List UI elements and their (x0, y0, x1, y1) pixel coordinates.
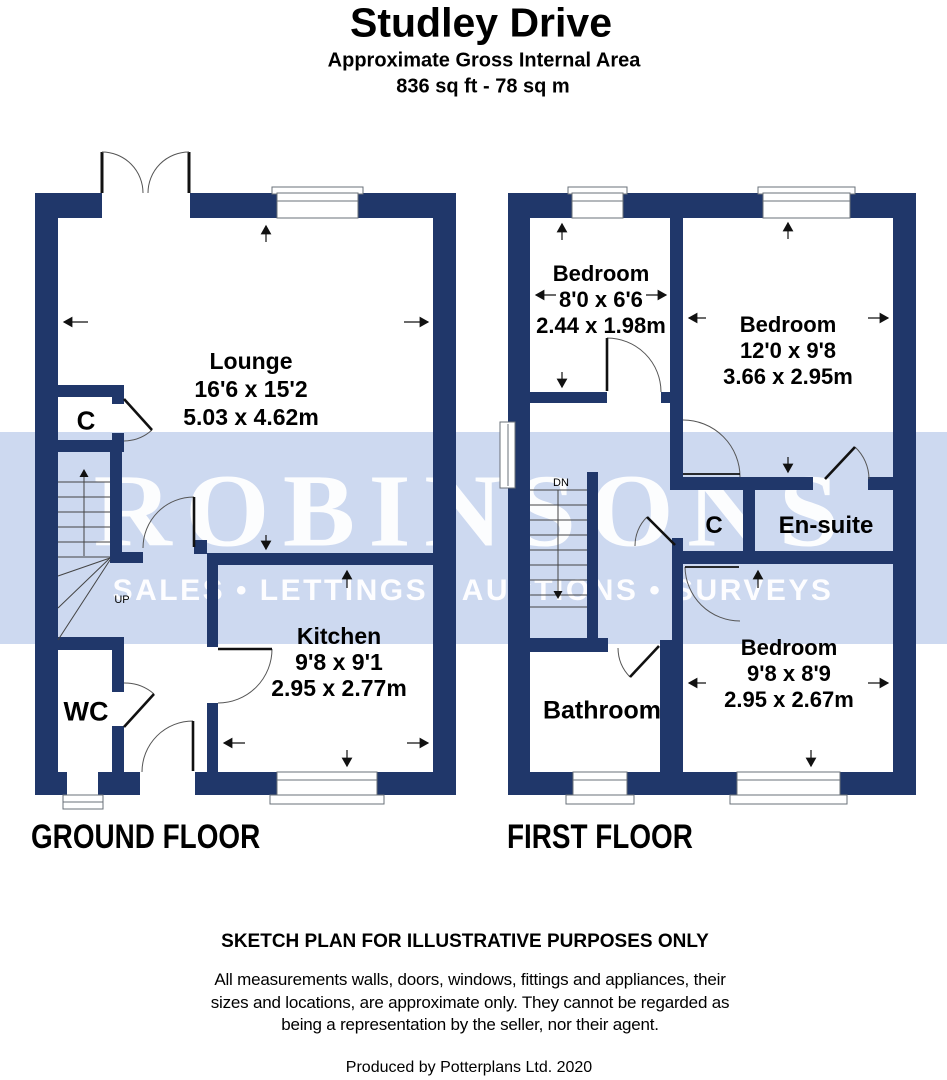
room-label-wc: WC (64, 697, 109, 728)
ground-floor-title: GROUND FLOOR (31, 818, 260, 857)
room-label-bathroom: Bathroom (543, 697, 661, 726)
room-label-kitchen: Kitchen 9'8 x 9'1 2.95 x 2.77m (271, 623, 407, 701)
disclaimer-line-2: sizes and locations, are approximate onl… (211, 993, 730, 1013)
ground-stairs (58, 470, 110, 640)
room-label-cupboard-first: C (705, 512, 722, 540)
bedroom3-name: Bedroom (724, 635, 854, 661)
bedroom3-metric-size: 2.95 x 2.67m (724, 687, 854, 713)
lounge-imperial-size: 16'6 x 15'2 (183, 375, 319, 403)
producer-credit: Produced by Potterplans Ltd. 2020 (346, 1059, 592, 1077)
stairs-up-label: UP (114, 594, 129, 606)
kitchen-imperial-size: 9'8 x 9'1 (271, 649, 407, 675)
bedroom3-imperial-size: 9'8 x 8'9 (724, 661, 854, 687)
kitchen-name: Kitchen (271, 623, 407, 649)
room-label-cupboard-ground: C (77, 406, 96, 437)
disclaimer-title: SKETCH PLAN FOR ILLUSTRATIVE PURPOSES ON… (221, 931, 709, 953)
room-label-bedroom2: Bedroom 12'0 x 9'8 3.66 x 2.95m (723, 312, 853, 390)
first-floor-title: FIRST FLOOR (507, 818, 693, 857)
bedroom1-imperial-size: 8'0 x 6'6 (536, 287, 666, 313)
ground-doors (102, 152, 272, 772)
bedroom2-metric-size: 3.66 x 2.95m (723, 364, 853, 390)
disclaimer-line-3: being a representation by the seller, no… (281, 1015, 659, 1035)
lounge-metric-size: 5.03 x 4.62m (183, 403, 319, 431)
kitchen-metric-size: 2.95 x 2.77m (271, 675, 407, 701)
stairs-down-label: DN (553, 477, 569, 489)
bedroom2-name: Bedroom (723, 312, 853, 338)
room-label-bedroom1: Bedroom 8'0 x 6'6 2.44 x 1.98m (536, 261, 666, 339)
room-label-ensuite: En-suite (779, 512, 874, 540)
room-label-bedroom3: Bedroom 9'8 x 8'9 2.95 x 2.67m (724, 635, 854, 713)
room-label-lounge: Lounge 16'6 x 15'2 5.03 x 4.62m (183, 347, 319, 431)
lounge-name: Lounge (183, 347, 319, 375)
bedroom1-metric-size: 2.44 x 1.98m (536, 313, 666, 339)
disclaimer-line-1: All measurements walls, doors, windows, … (214, 970, 725, 990)
floorplan-page: { "title": { "name": "Studley Drive", "s… (0, 0, 947, 1080)
first-stairs (530, 490, 587, 607)
floorplan-drawing (0, 0, 947, 1080)
bedroom2-imperial-size: 12'0 x 9'8 (723, 338, 853, 364)
bedroom1-name: Bedroom (536, 261, 666, 287)
